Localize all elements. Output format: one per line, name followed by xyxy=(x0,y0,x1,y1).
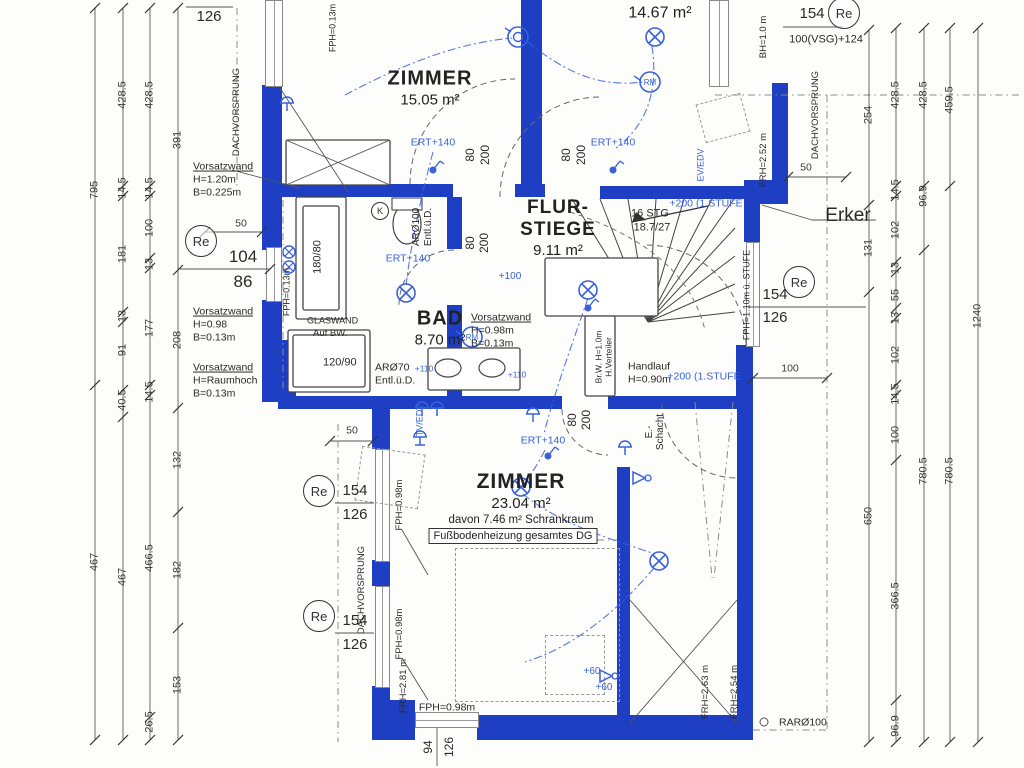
socket-icon xyxy=(526,408,540,422)
annotation-label: 86 xyxy=(234,273,253,291)
dimension-label: 13 xyxy=(117,310,128,322)
dimension-label: 428.5 xyxy=(918,81,929,109)
annotation-label: 104 xyxy=(229,248,257,266)
dimension-label: 795 xyxy=(89,181,100,199)
dimension-label: 14.5 xyxy=(890,179,901,200)
dimension-label: 26.5 xyxy=(144,711,155,732)
dimension-label: 459.5 xyxy=(944,86,955,114)
dimension-label: 182 xyxy=(172,561,183,579)
room-name: BAD xyxy=(415,308,466,331)
dimension-label: 13 xyxy=(144,258,155,270)
room-label-zimmer-2: ZIMMER 23.04 m² davon 7.46 m² Schrankrau… xyxy=(448,470,593,526)
annotation-label: 80 xyxy=(464,236,476,249)
annotation-label: 154 xyxy=(342,483,367,499)
annotation-label: Auf BW. xyxy=(313,329,347,339)
dimension-label: 131 xyxy=(863,239,874,257)
annotation-label: Handlauf xyxy=(628,362,670,373)
dimension-label: 102 xyxy=(890,346,901,364)
smoke-detector-icon: RM xyxy=(634,72,660,92)
dimension-label: 100 xyxy=(781,364,799,375)
floor-heating-note: Fußbodenheizung gesamtes DG xyxy=(429,528,598,544)
annotation-label: FPH=1.10m ü. STUFE xyxy=(742,250,751,340)
dimension-label: 1240 xyxy=(972,304,983,328)
annotation-label: 80 xyxy=(566,413,578,426)
annotation-label: B=0.225m xyxy=(193,188,241,199)
socket-icon xyxy=(618,441,632,455)
dimension-label: 102 xyxy=(890,221,901,239)
annotation-label: 100(VSG)+124 xyxy=(789,34,863,45)
annotation-label: H=0.90m xyxy=(628,375,671,386)
room-name: FLUR- xyxy=(520,197,596,219)
room-label-room-2: 14.67 m² xyxy=(628,4,691,23)
annotation-label: Entl.ü.D. xyxy=(375,376,415,387)
annotation-label: 254 xyxy=(196,0,221,4)
annotation-label: TV/EDV xyxy=(415,404,424,437)
room-name: STIEGE xyxy=(520,219,596,241)
annotation-label: H.Verteiler xyxy=(605,337,614,377)
dimension-label: 91 xyxy=(117,344,128,356)
dimension-label: 96.9 xyxy=(890,715,901,736)
dimension-label: 50 xyxy=(800,163,812,174)
reference-marker-re: Re xyxy=(303,600,335,632)
annotation-label: FPH=0.98m xyxy=(395,609,405,660)
annotation-label: FRH=2.52 m xyxy=(759,133,769,187)
room-area: 9.11 m² xyxy=(520,242,596,259)
annotation-label: B=0.13m xyxy=(193,333,235,344)
annotation-label: 16 STG xyxy=(631,208,669,219)
room-label-bad: BAD 8.70 m² xyxy=(415,308,466,349)
dimension-label: 55 xyxy=(890,289,901,301)
dimension-label: 50 xyxy=(235,219,247,230)
annotation-label: DACHVORSPRUNG xyxy=(357,546,367,634)
dimension-label: 14.5 xyxy=(117,177,128,198)
dimension-label: 780.5 xyxy=(944,457,955,485)
annotation-label: Schacht xyxy=(656,414,666,450)
ceiling-lamp-icon xyxy=(397,284,415,302)
dimension-label: 181 xyxy=(117,245,128,263)
annotation-label: 200 xyxy=(580,410,592,430)
annotation-label: H=0.98 xyxy=(193,320,227,331)
annotation-label: FRH=2.81 m xyxy=(399,659,409,713)
annotation-label: FRH=2.54 m xyxy=(730,665,740,719)
dimension-label: 391 xyxy=(172,131,183,149)
dimension-label: 254 xyxy=(863,106,874,124)
dimension-label: 428.5 xyxy=(144,81,155,109)
annotation-label: DACHVORSPRUNG xyxy=(811,71,821,159)
reference-marker-k: K xyxy=(371,202,389,220)
dimension-label: 208 xyxy=(172,331,183,349)
reference-marker-re: Re xyxy=(185,225,217,257)
annotation-label: 200 xyxy=(478,233,490,253)
dimension-label: 50 xyxy=(346,426,358,437)
dimension-label: 467 xyxy=(117,568,128,586)
dimension-label: 650 xyxy=(863,507,874,525)
annotation-label: B=0.13m xyxy=(193,389,235,400)
room-area: 23.04 m² xyxy=(448,495,593,512)
reference-marker-re: Re xyxy=(783,266,815,298)
annotation-label: ERT+140 xyxy=(591,138,635,149)
svg-text:RM: RM xyxy=(644,78,657,87)
dimension-label: 428.5 xyxy=(890,81,901,109)
annotation-label: 154 xyxy=(762,287,787,303)
annotation-label: 180/80 xyxy=(312,240,323,274)
annotation-label: 200 xyxy=(479,145,491,165)
annotation-label: ERT+140 xyxy=(521,436,565,447)
annotation-label: 126 xyxy=(342,637,367,653)
valve-icon xyxy=(283,246,295,258)
dimension-label: 14.5 xyxy=(890,383,901,404)
annotation-label: +200 (1.STUFE xyxy=(667,372,740,383)
room-area: 14.67 m² xyxy=(628,5,691,23)
wall-light-icon xyxy=(600,670,618,682)
dimension-label: 177 xyxy=(144,319,155,337)
annotation-label: 126 xyxy=(342,507,367,523)
annotation-label: EV/EDV xyxy=(696,148,705,181)
annotation-label: ARØ100 xyxy=(412,208,422,246)
ceiling-lamp-icon xyxy=(646,28,664,46)
dimension-label: 96.9 xyxy=(918,185,929,206)
switch-icon xyxy=(545,447,559,459)
annotation-label: 200 xyxy=(575,145,587,165)
annotation-label: Vorsatzwand xyxy=(193,307,253,318)
dimension-label: 466.5 xyxy=(144,544,155,572)
dimension-label: 14.5 xyxy=(144,177,155,198)
annotation-label: 80 xyxy=(464,148,476,161)
room-detail: davon 7.46 m² Schrankraum xyxy=(448,514,593,526)
room-area: 15.05 m² xyxy=(388,92,473,109)
annotation-label: +200 (1.STUFE xyxy=(669,199,742,210)
switch-icon xyxy=(430,161,444,173)
room-area: 8.70 m² xyxy=(415,332,466,349)
annotation-label: ERT+140 xyxy=(411,138,455,149)
dimension-label: 428.5 xyxy=(117,81,128,109)
annotation-label: 126 xyxy=(196,9,221,25)
reference-marker-re: Re xyxy=(303,475,335,507)
annotation-label: Vorsatzwand xyxy=(193,363,253,374)
annotation-label: FPH=0.98m xyxy=(395,480,405,531)
vent-icon xyxy=(505,27,528,47)
annotation-label: +110 xyxy=(508,371,527,380)
dimension-label: 780.5 xyxy=(918,457,929,485)
room-label-flur-stiege: FLUR- STIEGE 9.11 m² xyxy=(520,197,596,259)
floor-plan-canvas: RMRM 795467428.514.5181139140.5467428.51… xyxy=(0,0,1024,768)
dimension-label: 13 xyxy=(890,262,901,274)
wall-light-icon xyxy=(633,472,651,484)
switch-icon xyxy=(610,161,624,173)
annotation-label: H=Raumhoch xyxy=(193,376,258,387)
annotation-label: GLASWAND xyxy=(307,316,358,325)
annotation-label: 120/90 xyxy=(323,357,357,368)
annotation-label: FRH=2.63 m xyxy=(701,665,711,719)
annotation-label: Entl.ü.D. xyxy=(424,208,434,246)
annotation-label: +110 xyxy=(415,365,434,374)
annotation-label: Vorsatzwand xyxy=(471,313,531,324)
annotation-label: RARØ100 xyxy=(779,718,827,729)
annotation-label: H=0.98m xyxy=(471,326,514,337)
annotation-label: ARØ70 xyxy=(375,363,409,374)
dimension-label: 14.5 xyxy=(144,381,155,402)
annotation-label: B=0.13m xyxy=(471,339,513,350)
annotation-label: +60 xyxy=(584,667,601,677)
dimension-label: 13 xyxy=(890,312,901,324)
annotation-label: FPH=0.13m xyxy=(282,268,291,316)
ceiling-lamp-icon xyxy=(650,552,668,570)
annotation-label: BH=1.0 m xyxy=(759,16,769,59)
dimension-label: 100 xyxy=(890,426,901,444)
dimension-label: 153 xyxy=(172,676,183,694)
dimension-label: 366.5 xyxy=(890,582,901,610)
annotation-label: +60 xyxy=(596,683,613,693)
dimension-label: 100 xyxy=(144,219,155,237)
dimension-label: 40.5 xyxy=(117,389,128,410)
room-name: ZIMMER xyxy=(448,470,593,494)
annotation-label: +100 xyxy=(499,272,522,282)
annotation-label: H=1.20m xyxy=(193,175,236,186)
annotation-label: 18.7/27 xyxy=(634,222,671,233)
annotation-label: FPH=0.98m xyxy=(419,703,475,714)
annotation-label: 94 xyxy=(422,740,434,753)
room-label-zimmer-1: ZIMMER 15.05 m² xyxy=(388,68,473,109)
annotation-label: Br.W. H=1.0m xyxy=(595,331,604,384)
annotation-label: 126 xyxy=(762,310,787,326)
annotation-label: 80 xyxy=(560,148,572,161)
annotation-label: Vorsatzwand xyxy=(193,162,253,173)
dimension-label: 467 xyxy=(89,553,100,571)
annotation-label: 126 xyxy=(443,737,455,757)
dimension-label: 132 xyxy=(172,451,183,469)
annotation-label: DACHVORSPRUNG xyxy=(232,68,242,156)
annotation-label: Erker xyxy=(825,206,870,226)
annotation-label: ERT+140 xyxy=(386,254,430,265)
annotation-label: 154 xyxy=(799,6,824,22)
annotation-label: FPH=0.13m xyxy=(328,4,337,52)
socket-icon xyxy=(430,402,444,416)
room-name: ZIMMER xyxy=(388,68,473,91)
annotation-label: E.- xyxy=(645,426,655,439)
